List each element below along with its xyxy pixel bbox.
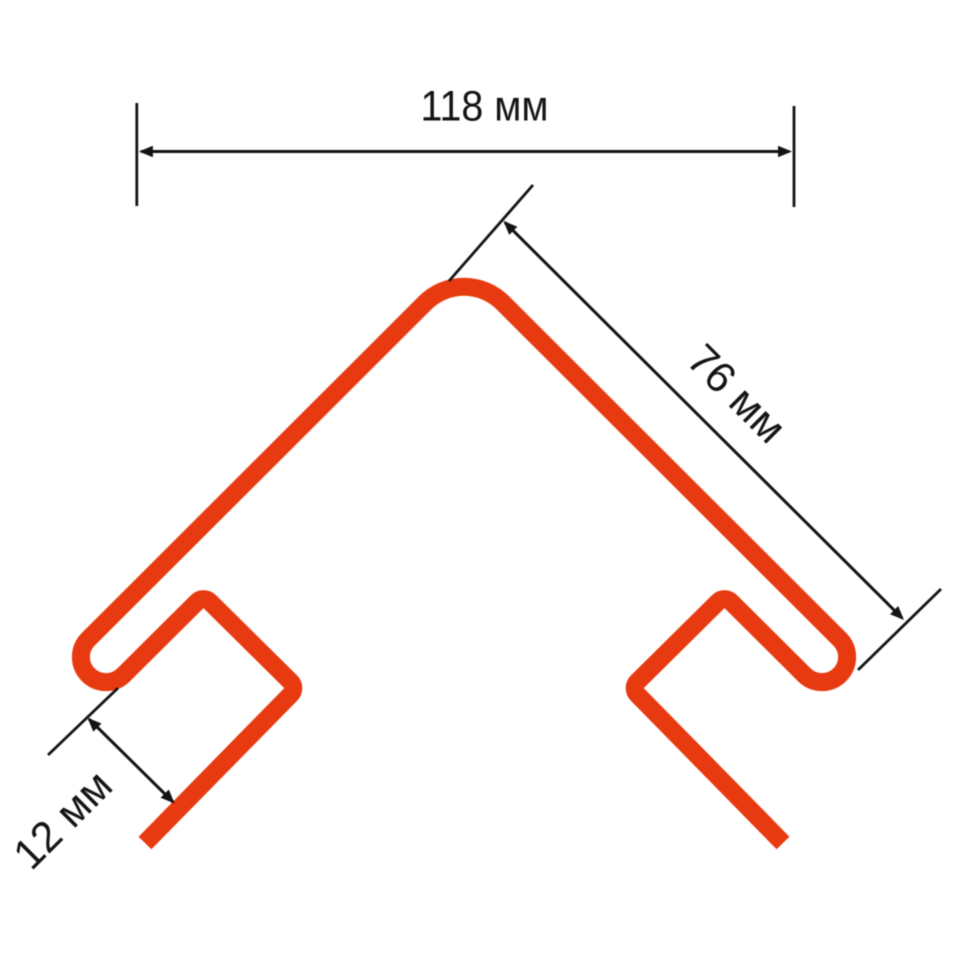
svg-text:76 мм: 76 мм [678, 335, 795, 452]
svg-text:12 мм: 12 мм [4, 761, 121, 878]
svg-text:118 мм: 118 мм [421, 83, 549, 131]
